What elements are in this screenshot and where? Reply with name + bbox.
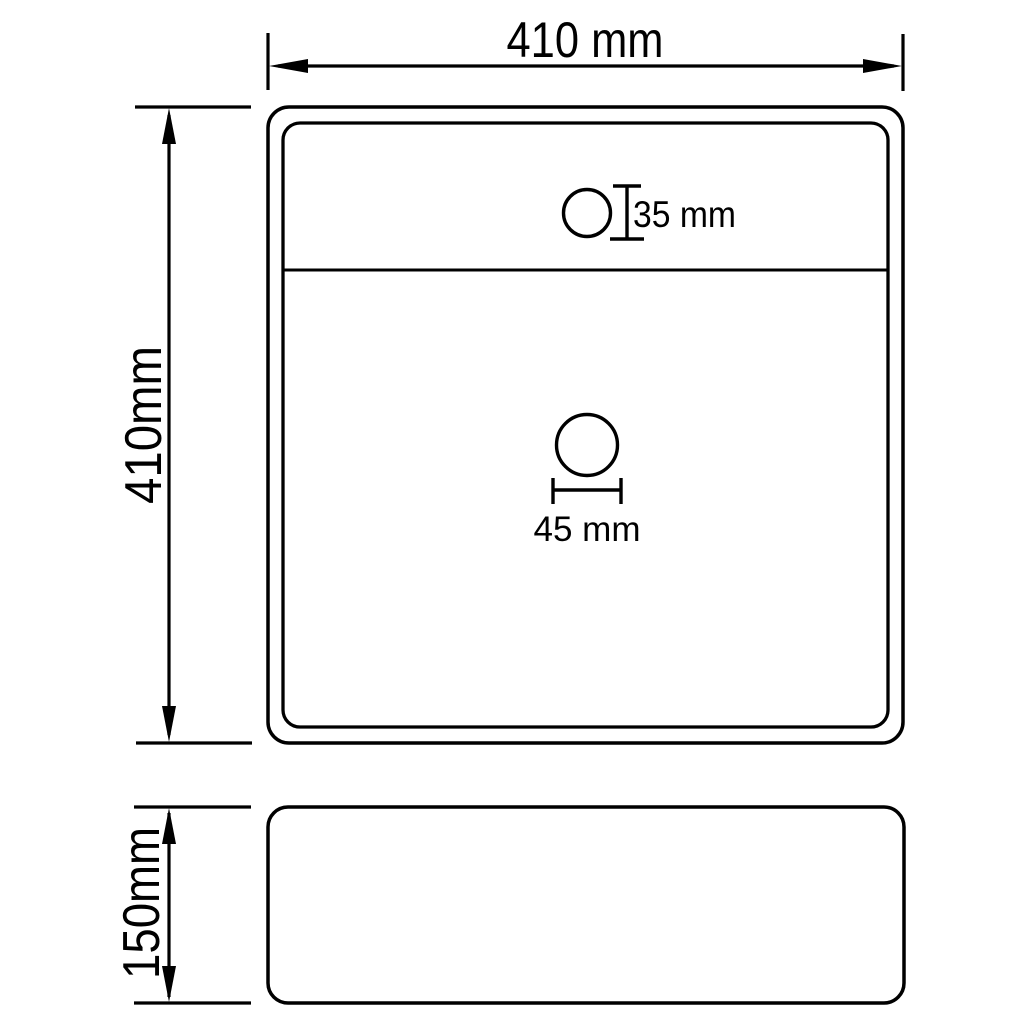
svg-text:150mm: 150mm bbox=[113, 827, 171, 979]
svg-text:35 mm: 35 mm bbox=[633, 194, 736, 235]
svg-text:45 mm: 45 mm bbox=[534, 510, 641, 549]
svg-text:410 mm: 410 mm bbox=[507, 12, 664, 68]
svg-text:410mm: 410mm bbox=[115, 346, 173, 504]
